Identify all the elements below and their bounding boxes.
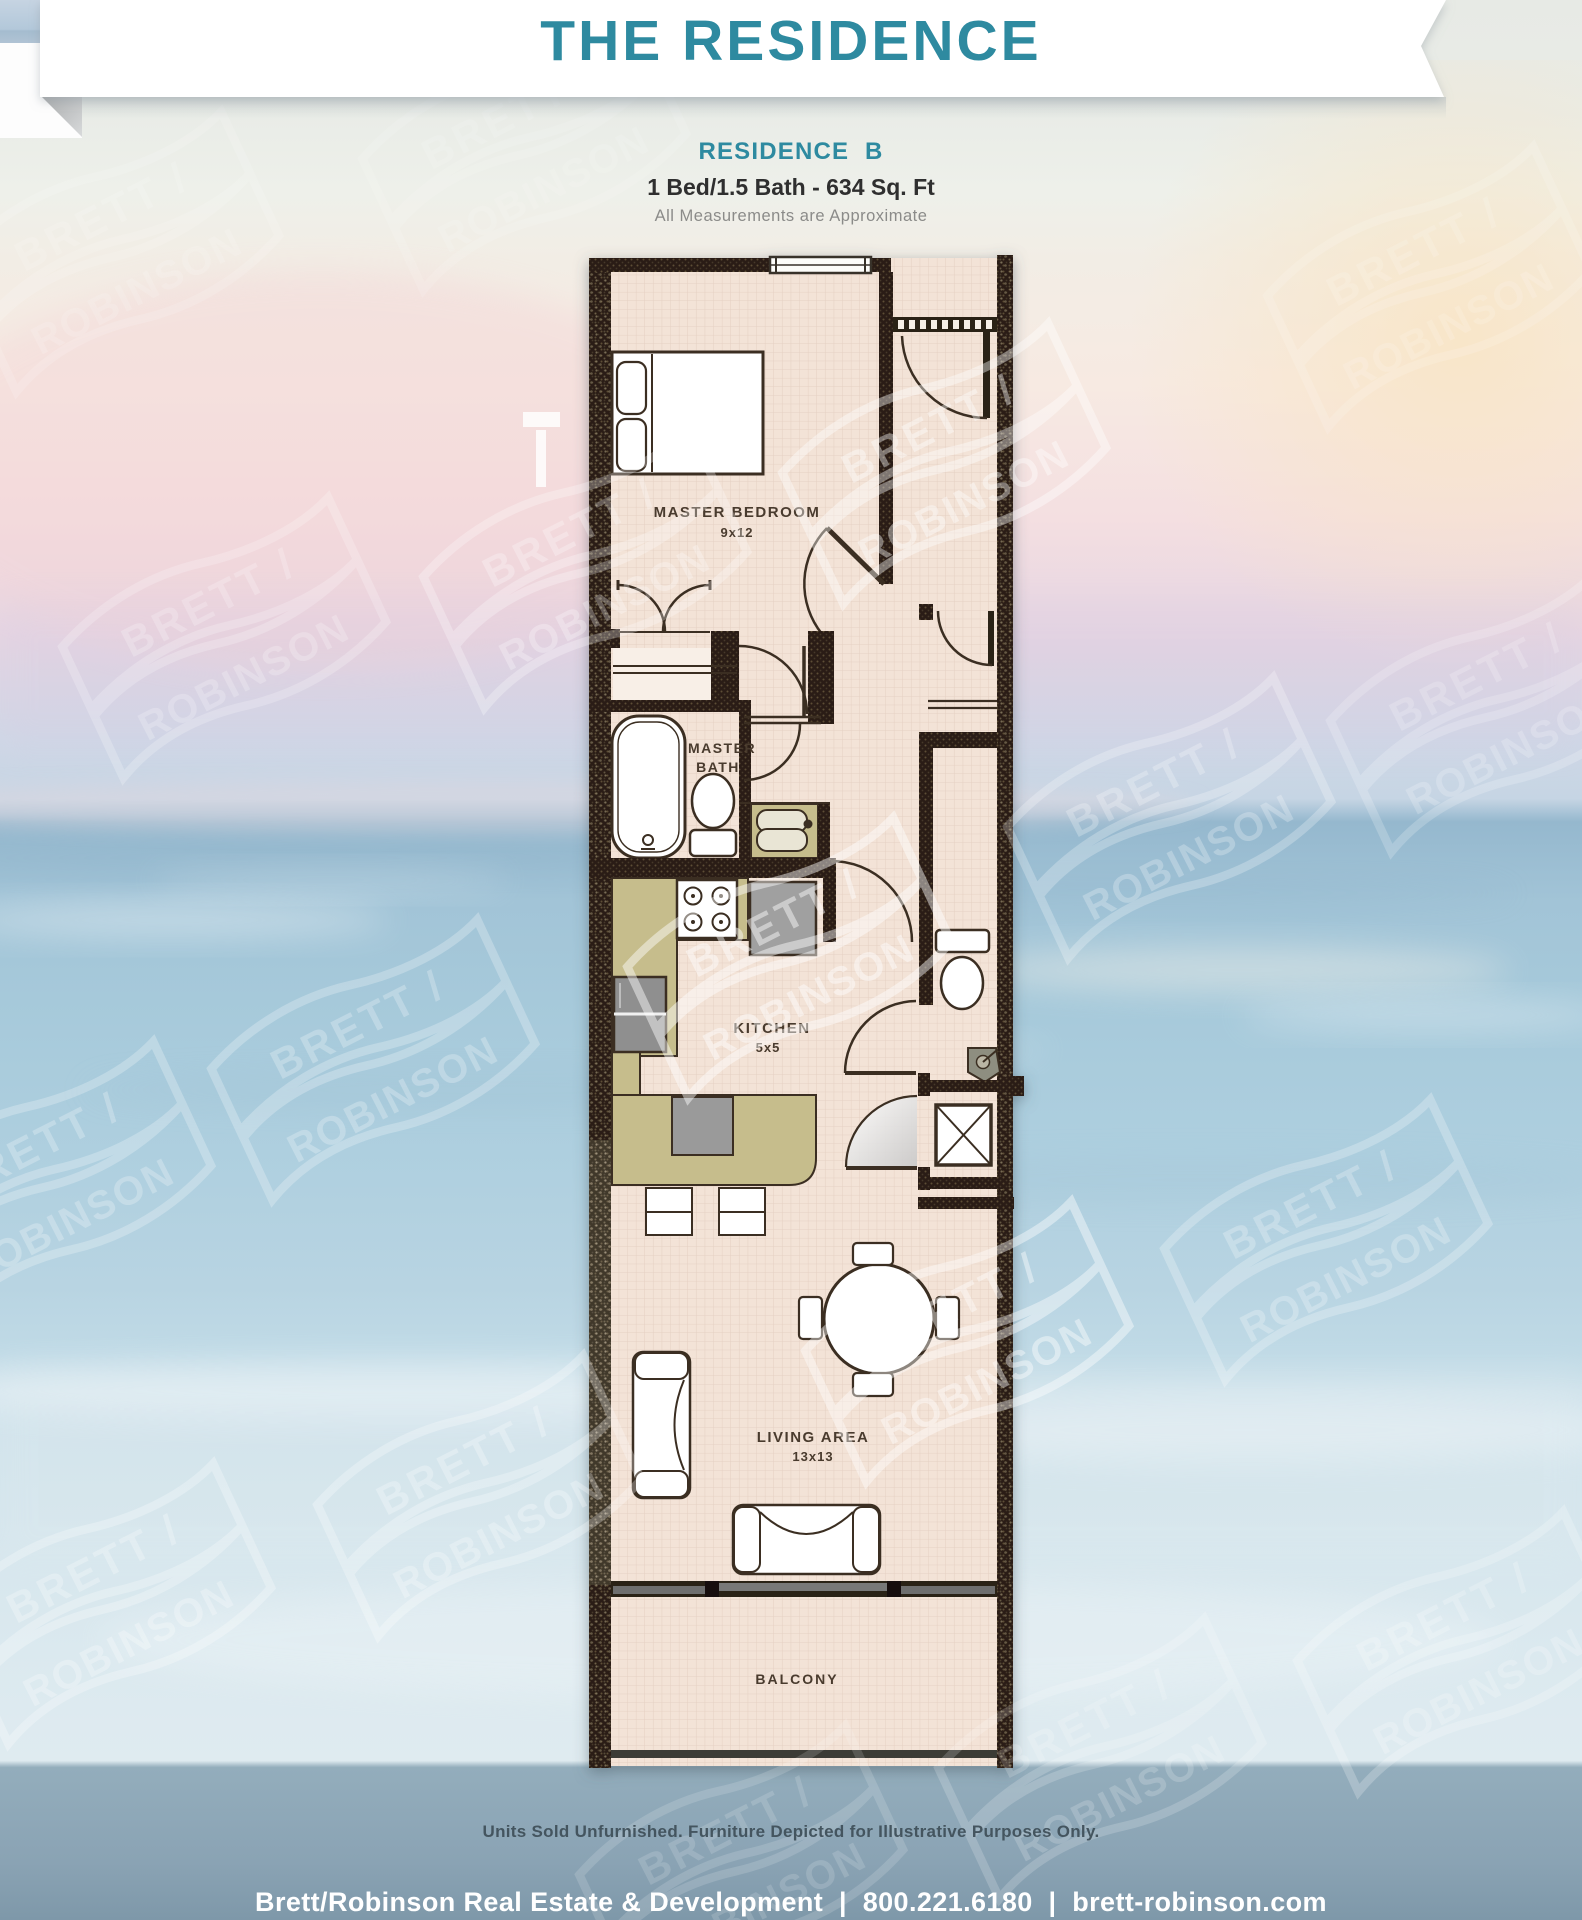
- svg-text:BATH: BATH: [696, 759, 740, 775]
- svg-text:MASTER: MASTER: [688, 740, 756, 756]
- svg-text:Brett/Robinson Real Estate & D: Brett/Robinson Real Estate & Development…: [255, 1887, 1327, 1917]
- svg-text:13x13: 13x13: [792, 1449, 833, 1464]
- svg-text:BALCONY: BALCONY: [755, 1671, 838, 1687]
- svg-text:RESIDENCE B: RESIDENCE B: [698, 138, 883, 165]
- svg-text:All Measurements are Approxima: All Measurements are Approximate: [655, 207, 928, 225]
- svg-text:Units Sold Unfurnished. Furnit: Units Sold Unfurnished. Furniture Depict…: [483, 1822, 1100, 1841]
- svg-text:THE RESIDENCE: THE RESIDENCE: [540, 9, 1041, 73]
- svg-text:1 Bed/1.5 Bath - 634 Sq. Ft: 1 Bed/1.5 Bath - 634 Sq. Ft: [647, 174, 935, 200]
